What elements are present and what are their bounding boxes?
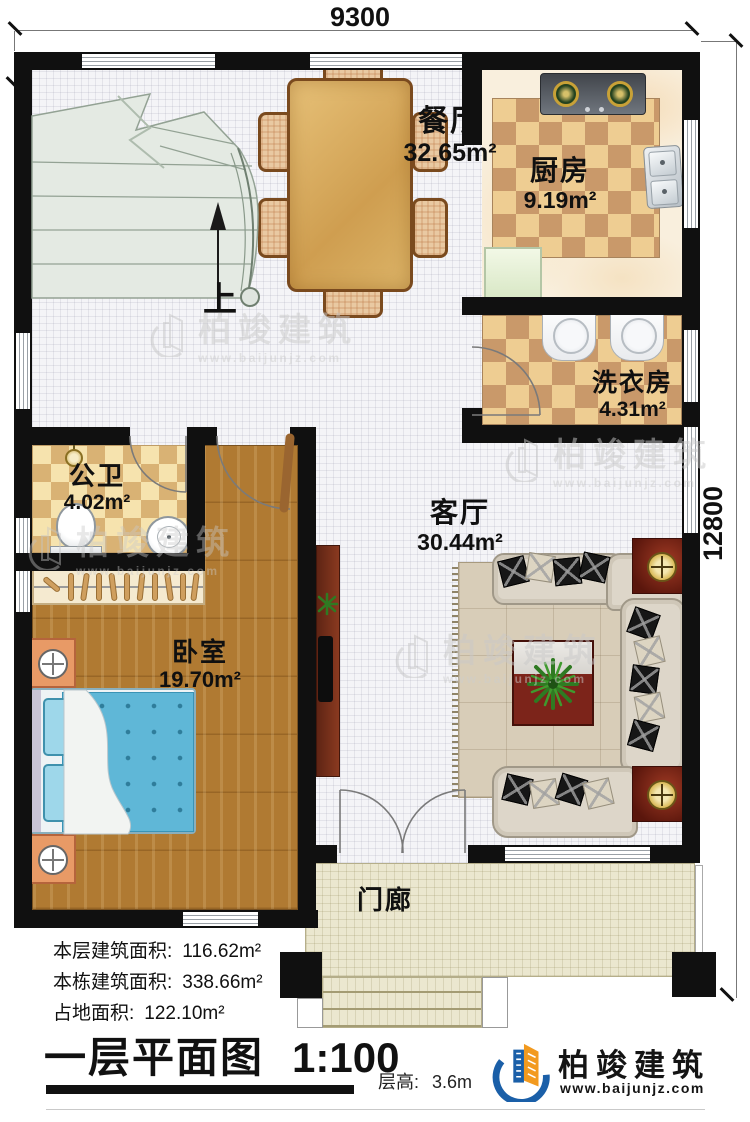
stat-floor-area: 本层建筑面积:116.62m² (53, 936, 263, 963)
dimension-top-value: 9300 (300, 2, 420, 33)
room-name: 餐厅 (392, 106, 508, 138)
area-stats: 本层建筑面积:116.62m² 本栋建筑面积:338.66m² 占地面积:122… (53, 936, 263, 1029)
wall-bedroom-right (298, 427, 316, 928)
room-name: 卧室 (138, 638, 262, 666)
dimension-right-value: 12800 (699, 485, 730, 560)
brand-logo: 柏竣建筑 www.baijunjz.com (492, 1036, 730, 1106)
window-living-bottom (505, 845, 650, 863)
pillow (578, 551, 610, 583)
coffee-table (512, 640, 594, 726)
wall-left (14, 52, 32, 928)
window-left-stair (14, 333, 32, 409)
bathroom-sink (146, 516, 190, 558)
room-label-bedroom: 卧室 19.70m² (138, 638, 262, 692)
dimension-line-right (736, 42, 737, 998)
kitchen-sink (643, 145, 684, 209)
room-name: 客厅 (398, 498, 522, 528)
brand-url: www.baijunjz.com (560, 1080, 705, 1096)
brand-name: 柏竣建筑 (558, 1040, 710, 1085)
pillow (634, 692, 666, 724)
room-name: 公卫 (42, 462, 152, 490)
wall-kitchen-laundry (462, 297, 682, 315)
window-top-left (82, 52, 215, 70)
wall-bedroom-bottom (14, 910, 318, 928)
porch-steps (322, 977, 482, 1028)
pillow (629, 664, 659, 694)
porch-floor (305, 863, 695, 977)
extension-line (14, 31, 15, 51)
porch-column (672, 952, 716, 997)
wardrobe (32, 567, 205, 605)
gas-stove (540, 73, 646, 115)
dimension-tick (8, 21, 23, 36)
window-right-kitchen (682, 120, 700, 228)
window-top-center (310, 52, 465, 70)
stairs-up-label: 上 (180, 282, 260, 319)
room-label-laundry: 洗衣房 4.31m² (575, 370, 690, 422)
window-bedroom-bottom (183, 910, 258, 928)
room-label-dining: 餐厅 32.65m² (392, 106, 508, 167)
title-underline-bar (46, 1085, 354, 1094)
tv (318, 636, 333, 702)
dimension-right-wrap: 12800 (692, 458, 736, 588)
room-label-porch: 门廊 (340, 886, 430, 914)
stat-building-area: 本栋建筑面积:338.66m² (53, 967, 263, 994)
room-area: 4.02m² (42, 492, 152, 515)
dining-chair (412, 198, 448, 258)
room-name: 洗衣房 (575, 370, 690, 397)
pillow (525, 552, 556, 583)
room-area: 30.44m² (398, 530, 522, 555)
room-label-living: 客厅 30.44m² (398, 498, 522, 555)
stat-footprint-area: 占地面积:122.10m² (53, 998, 263, 1025)
room-label-kitchen: 厨房 9.19m² (502, 156, 618, 213)
bed (30, 688, 196, 834)
wall-bathroom-bottom (14, 553, 205, 571)
sheet-title-row: 一层平面图 1:100 (44, 1024, 399, 1085)
wall-living-bottom (650, 845, 700, 863)
room-area: 32.65m² (392, 140, 508, 167)
room-label-bathroom: 公卫 4.02m² (42, 462, 152, 515)
floor-plan-sheet: 餐厅 32.65m² 厨房 9.19m² 洗衣房 4.31m² 公卫 4.02m… (0, 0, 750, 1122)
room-name: 门廊 (340, 886, 430, 914)
wall-living-bottom (468, 845, 505, 863)
nightstand (28, 638, 76, 688)
extension-line (701, 41, 737, 42)
kitchen-cabinet (484, 247, 542, 299)
wall-laundry-bottom (462, 425, 682, 443)
wall-bathroom-right (187, 427, 205, 571)
brand-logo-icon (492, 1036, 554, 1102)
pillow (553, 557, 583, 587)
room-area: 4.31m² (575, 399, 690, 422)
porch-column-base-right (482, 977, 508, 1028)
footer-divider (46, 1109, 705, 1110)
wall-bathroom-top (32, 427, 130, 445)
dimension-tick (685, 21, 700, 36)
room-area: 19.70m² (138, 668, 262, 692)
room-area: 9.19m² (502, 188, 618, 213)
nightstand (28, 834, 76, 884)
floor-height: 层高: 3.6m (378, 1068, 472, 1094)
wall-laundry-left (462, 408, 482, 425)
sheet-title: 一层平面图 (44, 1024, 264, 1085)
porch-column (280, 952, 322, 998)
room-name: 厨房 (502, 156, 618, 186)
dimension-tick (720, 987, 735, 1002)
